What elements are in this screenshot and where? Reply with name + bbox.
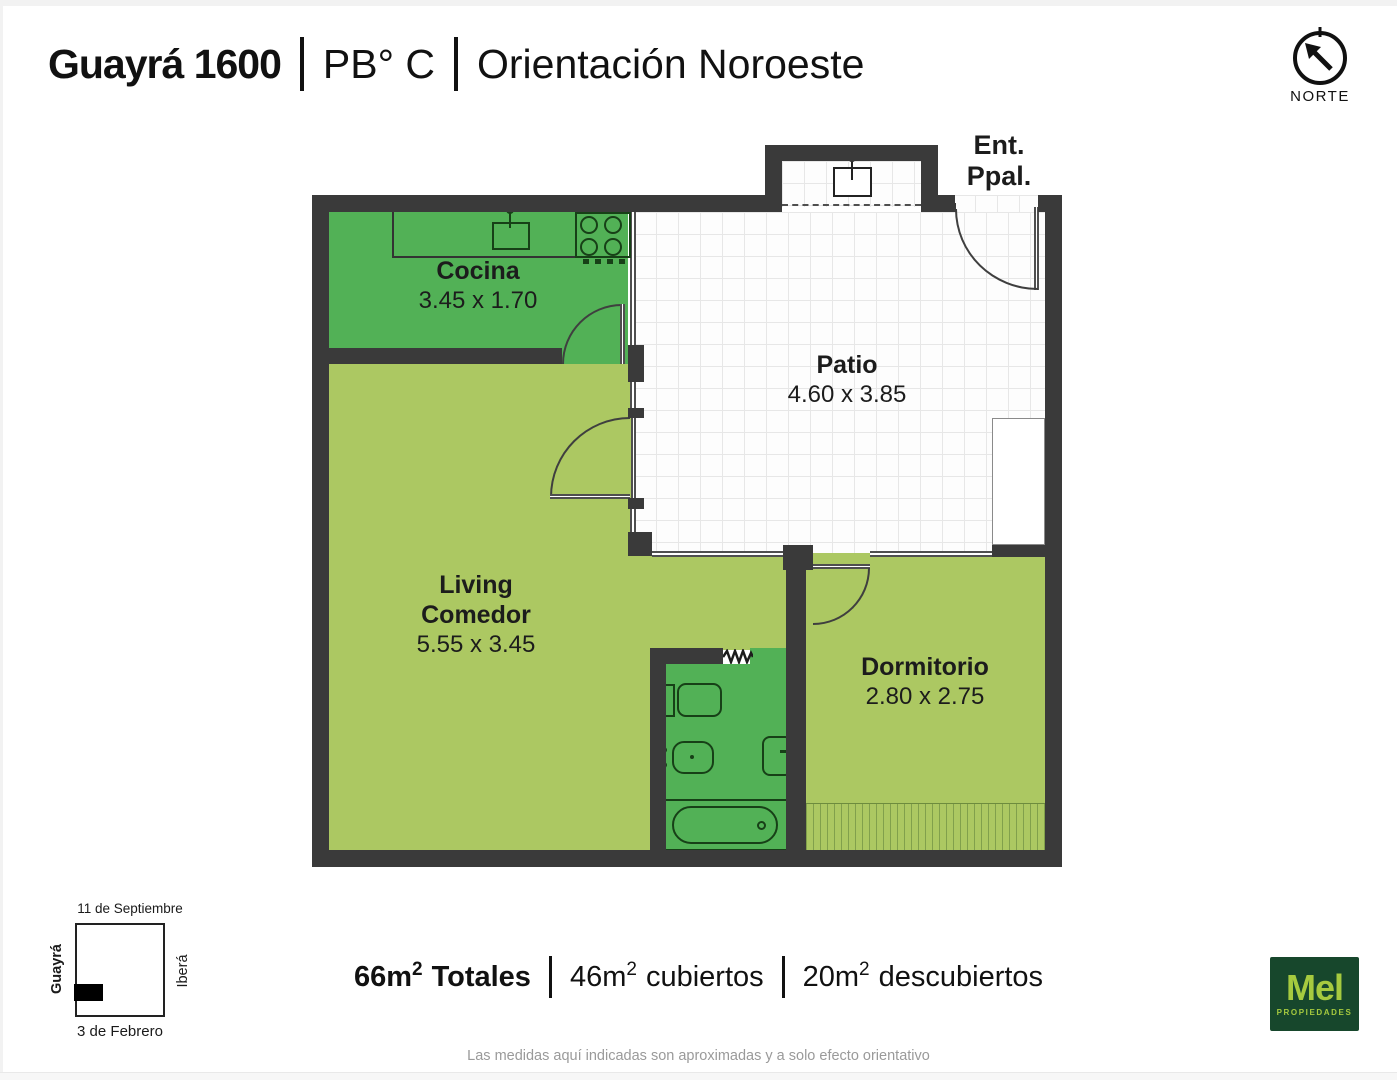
- area-uncovered: 20m2descubiertos: [803, 961, 1043, 994]
- window: [630, 382, 636, 408]
- area-label: cubiertos: [646, 961, 764, 993]
- wall-top-mid: [921, 195, 955, 212]
- room-name: Patio: [757, 350, 937, 380]
- label-patio: Patio 4.60 x 3.85: [757, 350, 937, 410]
- wall-kitchen-bottom: [312, 348, 562, 364]
- area-sup: 2: [859, 959, 870, 980]
- wall-stub: [628, 345, 644, 382]
- room-dims: 3.45 x 1.70: [390, 286, 566, 316]
- disclaimer-text: Las medidas aquí indicadas son aproximad…: [0, 1048, 1397, 1064]
- vestibule-dashed-line: [782, 204, 921, 206]
- room-name: Living: [381, 570, 571, 600]
- living-patio-door-closed-leaf: [631, 418, 636, 498]
- closet-hatch: [806, 803, 1045, 850]
- room-dims: 5.55 x 3.45: [381, 630, 571, 660]
- room-dims: 2.80 x 2.75: [825, 682, 1025, 712]
- room-dims: 4.60 x 3.85: [757, 380, 937, 410]
- wall-bath-left: [650, 648, 666, 850]
- window: [630, 509, 636, 532]
- wall-pier: [783, 545, 813, 570]
- label-dormitorio: Dormitorio 2.80 x 2.75: [825, 652, 1025, 712]
- toilet-bowl-icon: [677, 683, 722, 717]
- wall-right: [1045, 195, 1062, 867]
- entrance-line2: Ppal.: [955, 161, 1043, 192]
- room-name: Cocina: [390, 256, 566, 286]
- door-jamb: [786, 650, 792, 658]
- area-value: 66m: [354, 961, 412, 993]
- stove-knob: [607, 259, 613, 264]
- laundry-sink-tap: [851, 162, 853, 180]
- area-separator: [782, 956, 785, 998]
- living-patio-door-open-leaf: [550, 494, 630, 499]
- area-value: 20m: [803, 961, 859, 993]
- floorplan-page: Guayrá 1600 PB° C Orientación Noroeste N…: [0, 0, 1397, 1080]
- passage-floor: [650, 556, 786, 650]
- counter-line: [392, 212, 394, 258]
- kitchen-sink-icon: [492, 222, 530, 250]
- vent-zigzag-icon: [723, 649, 753, 664]
- window: [870, 551, 992, 557]
- stove-knob: [595, 259, 601, 264]
- burner-icon: [580, 238, 598, 256]
- wall-bottom: [312, 850, 1062, 867]
- kitchen-door-leaf: [620, 304, 625, 364]
- area-sup: 2: [626, 959, 637, 980]
- wall-stub: [628, 408, 644, 418]
- wall-stub: [628, 498, 644, 509]
- kitchen-sink-tap: [509, 212, 511, 228]
- wall-bath-top: [650, 648, 723, 664]
- wall-block: [992, 545, 1045, 557]
- stove-knob: [583, 259, 589, 264]
- area-separator: [549, 956, 552, 998]
- area-covered: 46m2cubiertos: [570, 961, 764, 994]
- stove-knob: [619, 259, 625, 264]
- label-cocina: Cocina 3.45 x 1.70: [390, 256, 566, 316]
- wall-left: [312, 195, 329, 867]
- bidet-drain: [690, 755, 694, 759]
- area-total: 66m2Totales: [354, 961, 531, 994]
- logo-name: Mel: [1286, 971, 1343, 1005]
- window: [652, 551, 783, 557]
- area-value: 46m: [570, 961, 626, 993]
- bath-door-opening-floor: [750, 648, 786, 664]
- wall-bath-right: [786, 570, 806, 850]
- burner-icon: [580, 216, 598, 234]
- patio-utility-box: [992, 418, 1045, 545]
- street-bottom-label: 3 de Febrero: [45, 1023, 195, 1040]
- bathtub-drain: [757, 821, 766, 830]
- label-entrance: Ent. Ppal.: [955, 130, 1043, 192]
- wall-top: [312, 195, 767, 212]
- area-sup: 2: [412, 959, 423, 980]
- door-jamb: [951, 203, 956, 212]
- wall-corner-block: [628, 532, 652, 556]
- area-label: descubiertos: [879, 961, 1043, 993]
- room-name: Dormitorio: [825, 652, 1025, 682]
- logo-subtitle: PROPIEDADES: [1277, 1008, 1353, 1017]
- wall-vestibule-top: [765, 145, 938, 161]
- entrance-line1: Ent.: [955, 130, 1043, 161]
- agency-logo: Mel PROPIEDADES: [1270, 957, 1359, 1031]
- burner-icon: [604, 216, 622, 234]
- label-living: Living Comedor 5.55 x 3.45: [381, 570, 571, 660]
- room-name: Comedor: [381, 600, 571, 630]
- street-top-label: 11 de Septiembre: [45, 901, 215, 916]
- area-summary: 66m2Totales 46m2cubiertos 20m2descubiert…: [0, 956, 1397, 998]
- burner-icon: [604, 238, 622, 256]
- area-label: Totales: [432, 961, 531, 993]
